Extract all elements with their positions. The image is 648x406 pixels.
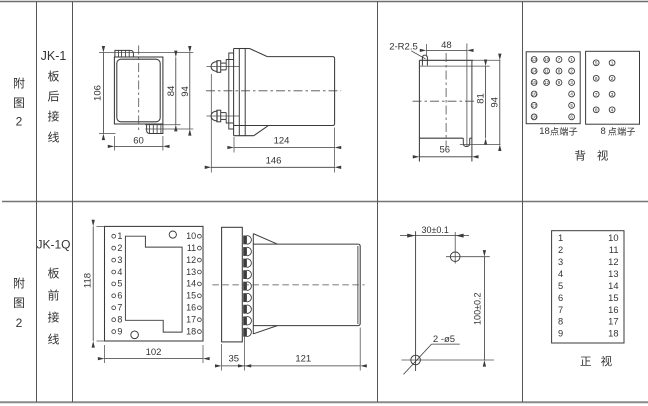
svg-text:3: 3 xyxy=(611,92,614,98)
svg-text:12: 12 xyxy=(608,257,618,267)
svg-text:16: 16 xyxy=(532,91,538,96)
svg-text:13: 13 xyxy=(608,269,618,279)
svg-text:2: 2 xyxy=(611,76,614,82)
svg-text:10: 10 xyxy=(186,231,196,241)
svg-text:1: 1 xyxy=(570,57,573,62)
svg-text:16: 16 xyxy=(186,302,196,312)
svg-text:5: 5 xyxy=(558,281,563,291)
svg-text:60: 60 xyxy=(133,135,144,146)
svg-text:84: 84 xyxy=(166,86,177,97)
svg-text:94: 94 xyxy=(180,86,191,97)
svg-text:7: 7 xyxy=(595,92,598,98)
svg-text:6: 6 xyxy=(558,293,563,303)
svg-text:9: 9 xyxy=(558,80,561,85)
svg-text:6: 6 xyxy=(117,291,122,301)
svg-text:8: 8 xyxy=(601,126,606,137)
svg-text:12: 12 xyxy=(186,255,196,265)
svg-text:18: 18 xyxy=(532,114,538,119)
svg-text:146: 146 xyxy=(266,155,282,166)
svg-text:81: 81 xyxy=(475,93,486,104)
svg-text:JK-1: JK-1 xyxy=(41,49,67,63)
svg-text:8: 8 xyxy=(558,68,561,73)
svg-text:5: 5 xyxy=(570,103,573,108)
svg-text:30±0.1: 30±0.1 xyxy=(421,225,448,235)
svg-text:15: 15 xyxy=(608,293,618,303)
svg-text:6: 6 xyxy=(570,114,573,119)
svg-text:14: 14 xyxy=(186,279,196,289)
svg-text:18: 18 xyxy=(608,329,618,339)
svg-text:121: 121 xyxy=(295,354,311,365)
svg-text:11: 11 xyxy=(187,243,196,253)
svg-text:9: 9 xyxy=(558,329,563,339)
svg-text:1: 1 xyxy=(117,231,122,241)
svg-text:100±0.2: 100±0.2 xyxy=(473,292,483,324)
svg-text:1: 1 xyxy=(611,60,614,66)
svg-text:5: 5 xyxy=(117,279,122,289)
svg-text:6: 6 xyxy=(595,76,598,82)
svg-text:2: 2 xyxy=(16,115,23,129)
svg-text:4: 4 xyxy=(117,267,122,277)
svg-text:2: 2 xyxy=(570,68,573,73)
svg-text:16: 16 xyxy=(608,305,618,315)
svg-text:8: 8 xyxy=(117,314,122,324)
svg-text:18: 18 xyxy=(186,326,196,336)
svg-text:35: 35 xyxy=(229,354,240,365)
svg-text:3: 3 xyxy=(570,80,573,85)
svg-text:106: 106 xyxy=(92,85,103,101)
svg-text:9: 9 xyxy=(117,326,122,336)
svg-text:14: 14 xyxy=(608,281,618,291)
svg-text:4: 4 xyxy=(558,269,563,279)
svg-text:4: 4 xyxy=(570,91,573,96)
svg-text:15: 15 xyxy=(186,291,196,301)
svg-text:2: 2 xyxy=(558,245,563,255)
svg-text:8: 8 xyxy=(595,107,598,113)
svg-text:15: 15 xyxy=(532,80,538,85)
svg-text:10: 10 xyxy=(544,57,550,62)
svg-text:7: 7 xyxy=(558,57,561,62)
svg-text:17: 17 xyxy=(532,103,538,108)
svg-text:18: 18 xyxy=(539,126,550,137)
svg-text:7: 7 xyxy=(117,302,122,312)
svg-text:5: 5 xyxy=(595,60,598,66)
svg-text:17: 17 xyxy=(186,314,196,324)
svg-text:8: 8 xyxy=(558,317,563,327)
svg-text:2-R2.5: 2-R2.5 xyxy=(389,42,418,53)
svg-text:1: 1 xyxy=(558,233,563,243)
svg-text:56: 56 xyxy=(440,145,451,156)
svg-text:12: 12 xyxy=(544,80,550,85)
svg-text:2: 2 xyxy=(16,316,23,330)
svg-text:124: 124 xyxy=(274,136,290,147)
svg-text:3: 3 xyxy=(117,255,122,265)
svg-text:3: 3 xyxy=(558,257,563,267)
svg-text:13: 13 xyxy=(532,57,538,62)
svg-text:48: 48 xyxy=(441,40,452,51)
svg-text:2: 2 xyxy=(117,243,122,253)
svg-text:17: 17 xyxy=(608,317,618,327)
svg-text:10: 10 xyxy=(608,233,618,243)
svg-text:102: 102 xyxy=(146,347,162,358)
svg-text:118: 118 xyxy=(83,273,94,288)
svg-text:13: 13 xyxy=(186,267,196,277)
svg-text:11: 11 xyxy=(544,68,549,73)
svg-text:11: 11 xyxy=(609,245,619,255)
svg-text:4: 4 xyxy=(611,107,614,113)
svg-text:7: 7 xyxy=(558,305,563,315)
svg-text:2 -ø5: 2 -ø5 xyxy=(433,334,455,345)
svg-text:14: 14 xyxy=(532,68,538,73)
svg-text:94: 94 xyxy=(489,97,500,108)
svg-text:JK-1Q: JK-1Q xyxy=(36,238,70,252)
